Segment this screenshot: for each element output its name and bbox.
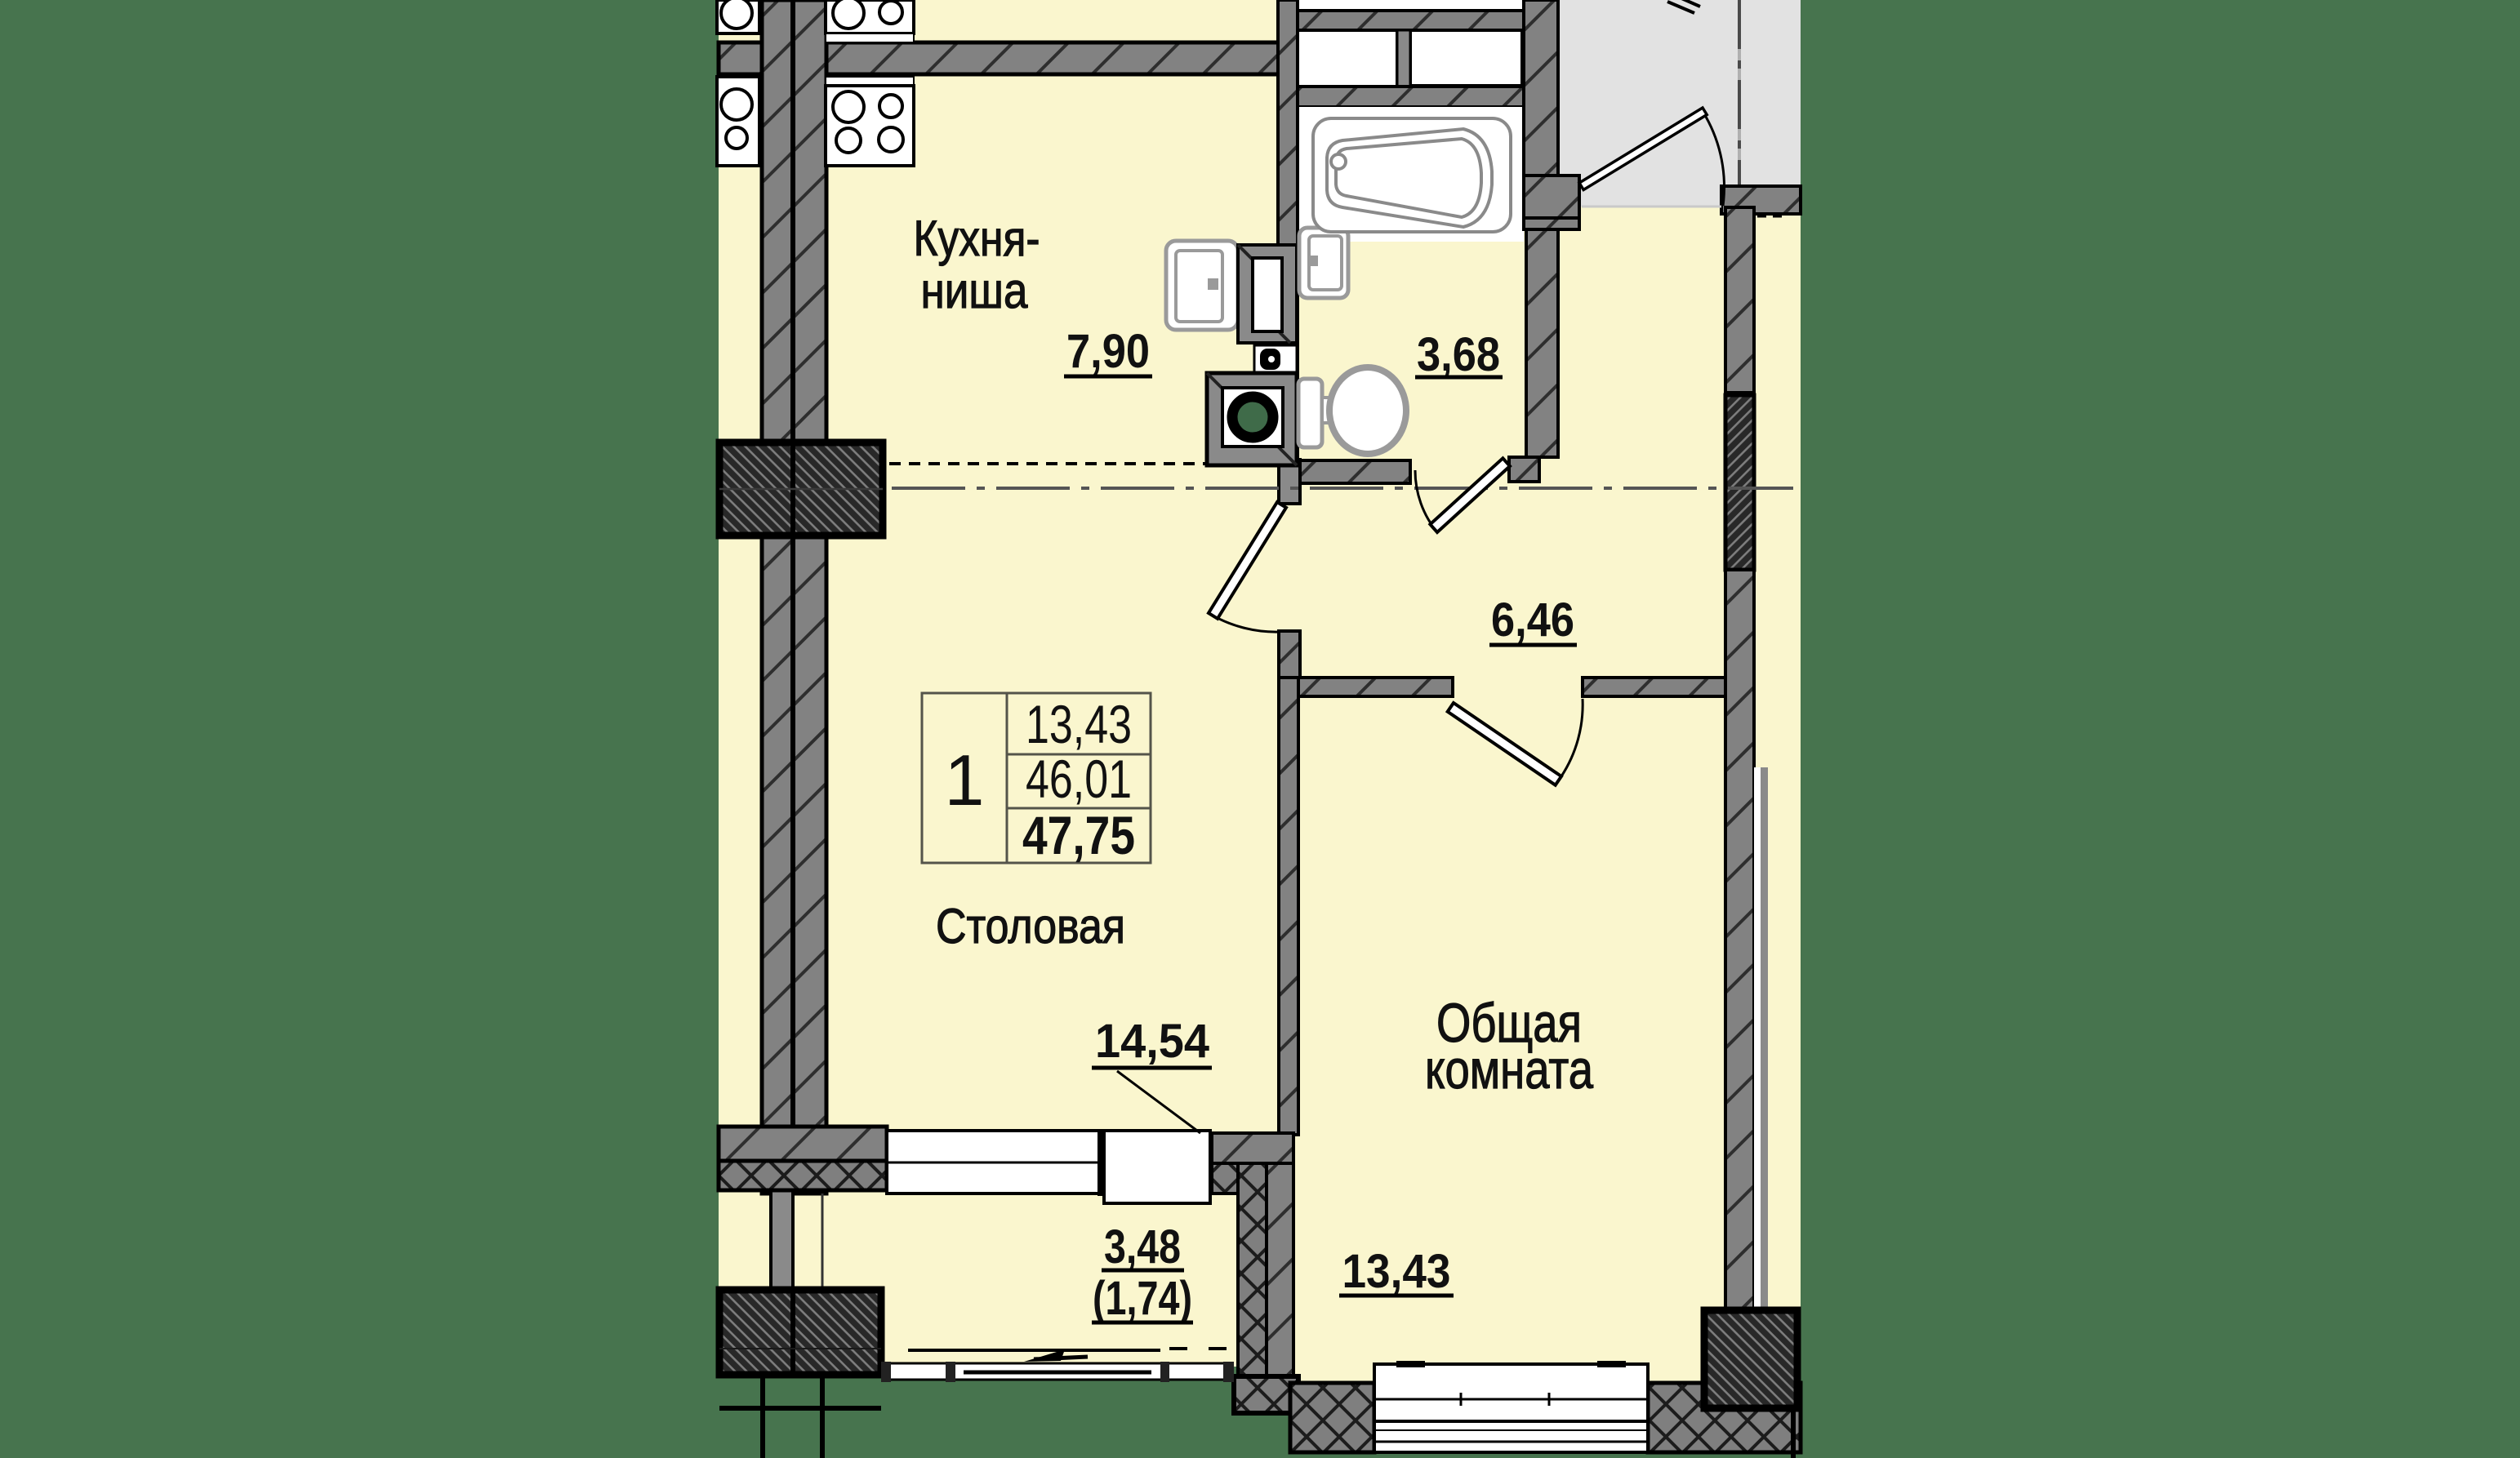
svg-text:Столовая: Столовая [936, 899, 1125, 953]
svg-text:комната: комната [1425, 1039, 1594, 1100]
svg-text:3,68: 3,68 [1417, 328, 1500, 381]
svg-text:47,75: 47,75 [1022, 805, 1135, 865]
svg-text:(1,74): (1,74) [1093, 1272, 1192, 1325]
svg-text:6,46: 6,46 [1491, 593, 1574, 647]
svg-text:14,54: 14,54 [1095, 1015, 1209, 1068]
svg-text:13,43: 13,43 [1026, 694, 1132, 754]
svg-text:13,43: 13,43 [1342, 1245, 1451, 1298]
svg-text:3,48: 3,48 [1104, 1220, 1181, 1274]
svg-text:ниша: ниша [921, 263, 1028, 318]
svg-text:46,01: 46,01 [1026, 749, 1132, 809]
svg-text:1: 1 [945, 740, 985, 820]
svg-text:7,90: 7,90 [1066, 325, 1150, 378]
svg-text:Кухня-: Кухня- [914, 211, 1040, 266]
